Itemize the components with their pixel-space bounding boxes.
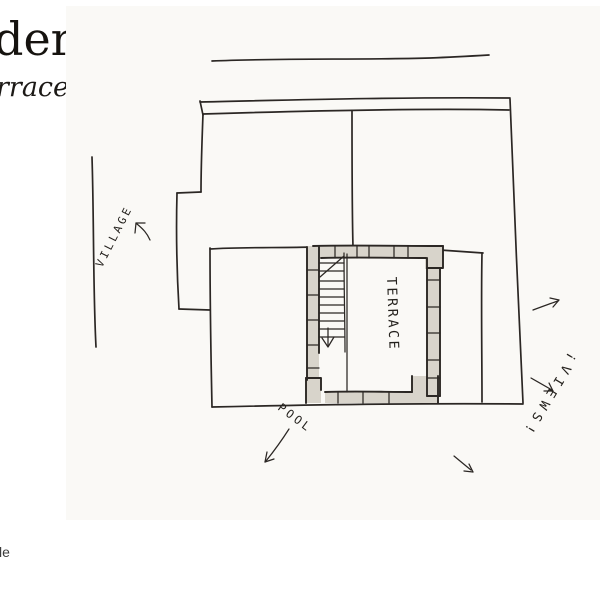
plan-sketch-svg: VILLAGE TERRACE POOL ¡VIEWS! (0, 0, 600, 600)
floor-plan-sketch: dera rrace le (0, 0, 600, 600)
terrace-label: TERRACE (383, 277, 402, 352)
